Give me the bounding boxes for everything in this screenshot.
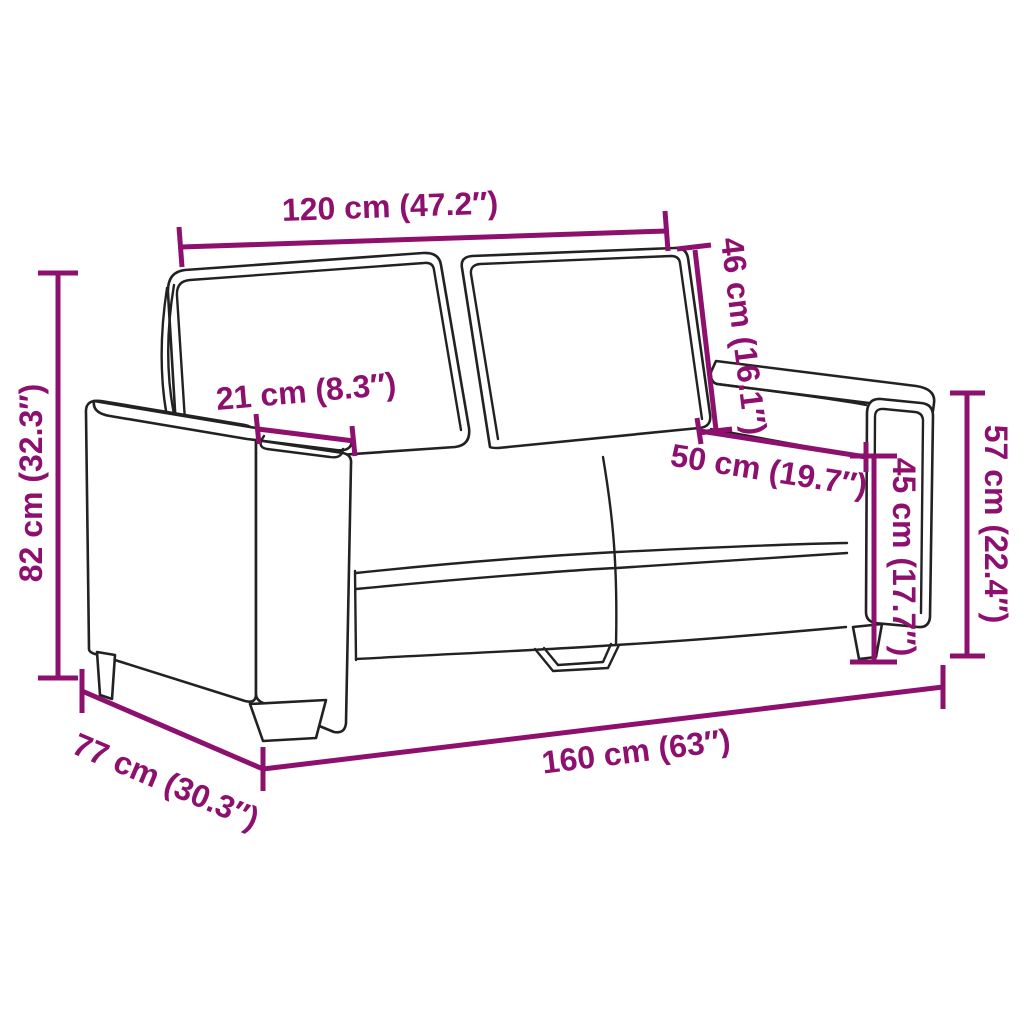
overall-height-label: 82 cm (32.3″): [13, 384, 49, 583]
left-arm-front: [256, 440, 351, 732]
left-back-leg: [97, 652, 115, 699]
seat-left-edge: [355, 571, 356, 660]
seat-width-top-label: 120 cm (47.2″): [281, 184, 498, 228]
seat-middle-seam: [603, 457, 616, 644]
left-front-leg: [250, 700, 326, 741]
seat-depth-label: 50 cm (19.7″): [668, 437, 870, 504]
sofa-drawing: [86, 248, 934, 741]
right-leg: [853, 624, 882, 659]
backrest-height-label: 46 cm (16.1″): [714, 235, 774, 436]
armrest-height-label: 57 cm (22.4″): [978, 425, 1014, 624]
overall-depth-label: 77 cm (30.3″): [68, 726, 265, 837]
back-cushion-right: [462, 248, 711, 448]
seat-bottom-edge: [356, 627, 846, 659]
seat-height-label: 45 cm (17.7″): [886, 458, 922, 657]
seat-base-seam: [356, 553, 847, 589]
product-dimension-diagram: 120 cm (47.2″) 46 cm (16.1″) 21 cm (8.3″…: [0, 0, 1024, 1024]
sofa-dimension-drawing: 120 cm (47.2″) 46 cm (16.1″) 21 cm (8.3″…: [0, 0, 1024, 1024]
